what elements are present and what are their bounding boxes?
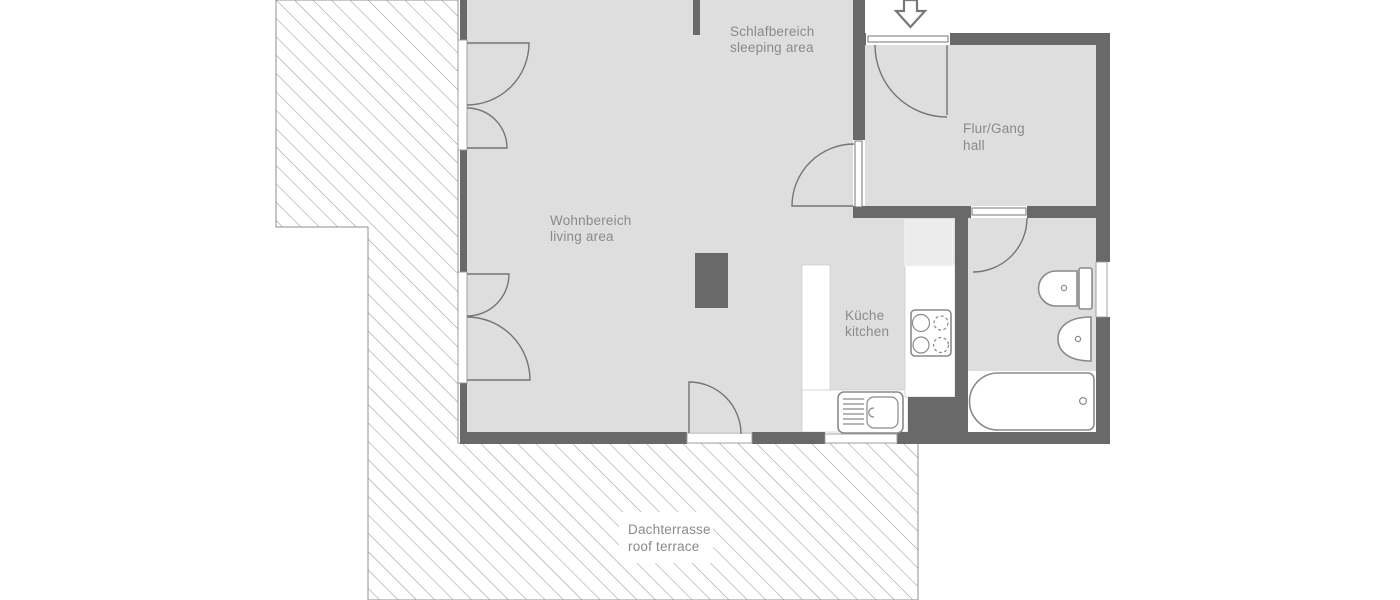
- wall-hall-top-2: [950, 33, 1110, 45]
- label-terrace-en: roof terrace: [628, 539, 699, 554]
- terrace-label-backdrop: [619, 512, 713, 563]
- wall-right-1: [1096, 33, 1110, 262]
- label-living-en: living area: [550, 229, 614, 244]
- window-right: [1096, 262, 1107, 317]
- chimney-block: [695, 253, 728, 308]
- wall-living-hall-upper: [853, 0, 865, 140]
- label-terrace-de: Dachterrasse: [628, 522, 711, 537]
- wall-bottom-2: [752, 432, 825, 444]
- label-hall-de: Flur/Gang: [963, 121, 1025, 136]
- kitchen-appliance-block: [905, 220, 953, 266]
- floor-plan-drawing: Schlafbereich sleeping area Wohnbereich …: [0, 0, 1400, 600]
- entrance-arrow-icon: [896, 0, 925, 27]
- toilet-icon: [1039, 268, 1093, 309]
- label-kitchen-en: kitchen: [845, 324, 889, 339]
- wall-left-2: [460, 150, 467, 272]
- floor-plan: Schlafbereich sleeping area Wohnbereich …: [0, 0, 1400, 600]
- wall-left-3: [460, 383, 467, 432]
- wall-corner-block: [908, 397, 968, 443]
- bathtub-icon: [970, 373, 1095, 430]
- partition-stub: [693, 0, 700, 35]
- wall-hall-bottom-1: [853, 206, 971, 218]
- label-sleeping-de: Schlafbereich: [730, 24, 814, 39]
- label-kitchen-de: Küche: [845, 308, 884, 323]
- cooktop-icon: [911, 310, 951, 356]
- wall-right-2: [1096, 317, 1110, 444]
- label-living-de: Wohnbereich: [550, 213, 632, 228]
- wall-hall-top-1: [855, 33, 866, 45]
- wall-bathroom-left: [955, 218, 968, 398]
- wall-left-1: [460, 0, 467, 40]
- label-sleeping-en: sleeping area: [730, 40, 814, 55]
- wall-bottom-1: [460, 432, 687, 444]
- window-bottom: [825, 434, 897, 443]
- kitchen-sink-icon: [838, 392, 903, 433]
- label-hall-en: hall: [963, 138, 985, 153]
